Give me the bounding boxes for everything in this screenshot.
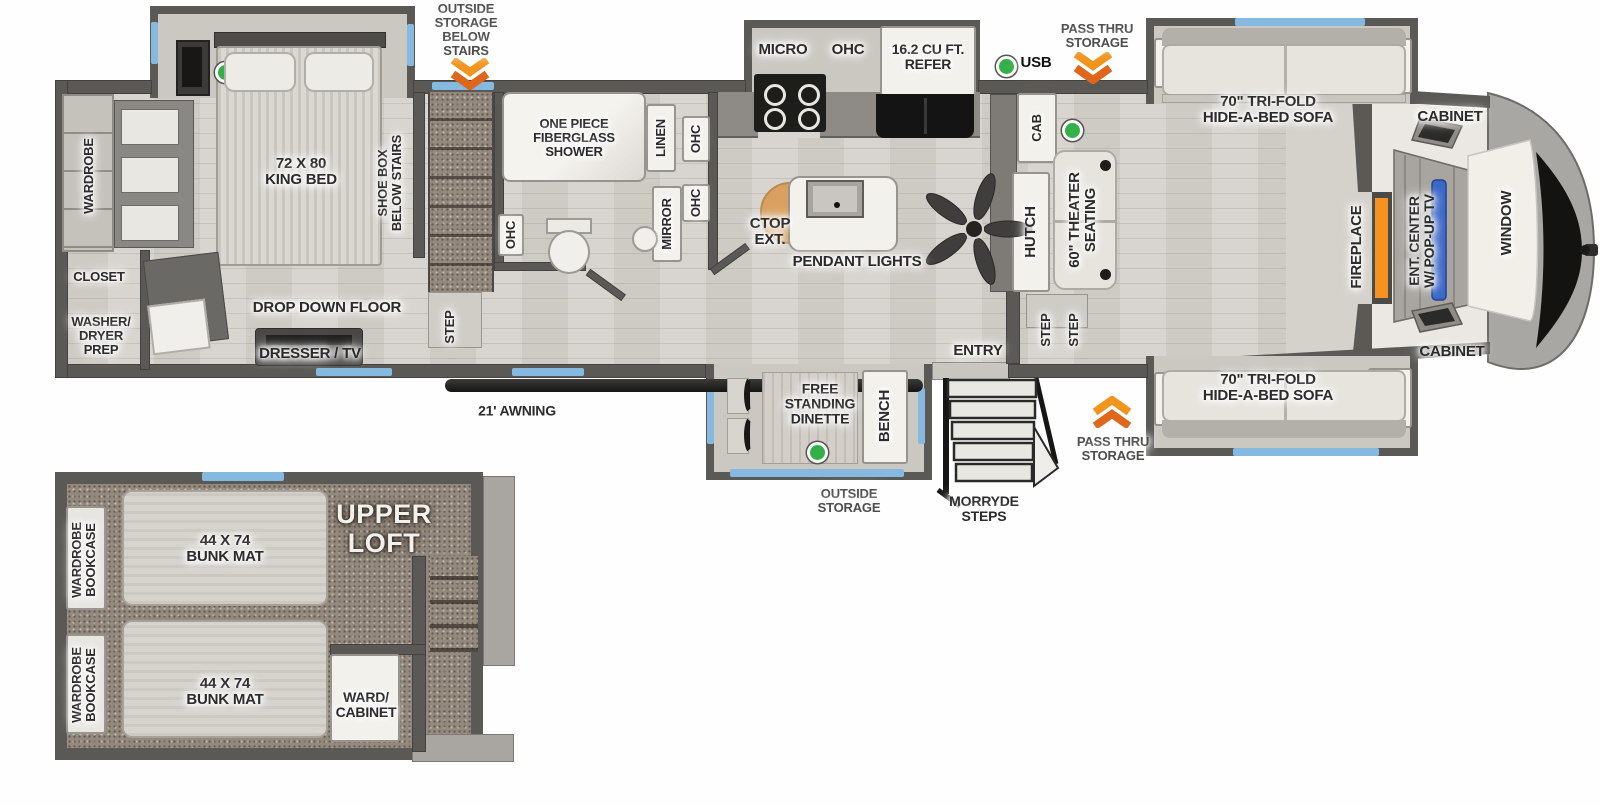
label-outside-storage: OUTSIDE STORAGE xyxy=(818,487,881,515)
label-wardrobe-bookcase-2: WARDROBE BOOKCASE xyxy=(70,647,98,723)
window-strip xyxy=(1233,448,1379,456)
storage-arrow-down xyxy=(448,58,492,90)
label-entry: ENTRY xyxy=(953,343,1002,359)
window-strip xyxy=(316,368,392,376)
window-strip xyxy=(512,368,584,376)
pillow xyxy=(224,52,296,92)
label-sofa-top: 70" TRI-FOLD HIDE-A-BED SOFA xyxy=(1203,94,1333,126)
loft-side-panel xyxy=(483,476,515,666)
label-wardrobe-bookcase-1: WARDROBE BOOKCASE xyxy=(70,522,98,598)
label-usb: USB xyxy=(1020,55,1051,71)
label-ohc-top: OHC xyxy=(689,125,703,153)
label-bench: BENCH xyxy=(877,390,893,442)
label-fireplace: FIREPLACE xyxy=(1349,205,1365,288)
label-window: WINDOW xyxy=(1499,191,1515,256)
label-closet: CLOSET xyxy=(73,270,125,284)
label-mirror: MIRROR xyxy=(660,198,674,250)
loft-stairs xyxy=(430,556,478,652)
wall xyxy=(978,80,1148,94)
label-upper-loft: UPPER LOFT xyxy=(336,500,432,558)
toilet-bowl xyxy=(548,230,590,274)
island-sink xyxy=(806,180,864,218)
label-refer: 16.2 CU FT. REFER xyxy=(892,42,965,72)
window-strip xyxy=(407,24,414,66)
label-ent-center: ENT. CENTER W/ POP-UP TV xyxy=(1407,194,1437,288)
label-pass-thru-top: PASS THRU STORAGE xyxy=(1061,22,1133,50)
label-step-left: STEP xyxy=(443,310,457,343)
usb-dot xyxy=(807,442,828,463)
cooktop xyxy=(754,74,826,132)
label-ohc-kitchen: OHC xyxy=(832,42,865,58)
pillow xyxy=(304,52,374,92)
label-awning: 21' AWNING xyxy=(478,403,556,418)
fireplace-flame xyxy=(1375,198,1388,298)
usb-dot xyxy=(1062,120,1083,141)
label-bunk-mat-2: 44 X 74 BUNK MAT xyxy=(186,676,263,708)
label-wardrobe: WARDROBE xyxy=(82,138,96,214)
label-ctop-ext: CTOP EXT. xyxy=(750,216,791,248)
label-micro: MICRO xyxy=(759,42,808,58)
window-strip xyxy=(1235,18,1365,26)
chair-back xyxy=(744,416,757,454)
sofa-back xyxy=(1162,420,1406,438)
window-strip xyxy=(918,388,925,444)
label-step-1: STEP xyxy=(1039,313,1053,346)
label-cabinet-top: CABINET xyxy=(1417,109,1482,125)
label-cab: CAB xyxy=(1030,114,1044,142)
wall xyxy=(55,80,152,94)
label-hutch: HUTCH xyxy=(1023,206,1039,258)
bath-sink xyxy=(632,226,658,252)
label-shoe-box: SHOE BOX BELOW STAIRS xyxy=(376,135,404,231)
usb-dot xyxy=(996,56,1017,77)
ceiling-fan xyxy=(915,170,1033,288)
label-sofa-bottom: 70" TRI-FOLD HIDE-A-BED SOFA xyxy=(1203,372,1333,404)
label-ward-cabinet: WARD/ CABINET xyxy=(336,690,397,720)
label-ohc-bottom: OHC xyxy=(689,189,703,217)
washer-unit xyxy=(147,299,211,356)
wall-entry xyxy=(1006,290,1020,364)
oven-handle xyxy=(758,132,820,138)
label-dinette: FREE STANDING DINETTE xyxy=(785,381,855,426)
label-outside-storage-below-stairs: OUTSIDE STORAGE BELOW STAIRS xyxy=(435,2,498,58)
window-strip xyxy=(707,388,714,444)
label-step-2: STEP xyxy=(1067,313,1081,346)
loft-landing xyxy=(412,734,514,762)
chair-back xyxy=(744,376,757,414)
label-pendant-lights: PENDANT LIGHTS xyxy=(793,254,922,270)
label-morryde-steps: MORRYDE STEPS xyxy=(949,494,1019,524)
refrigerator-front xyxy=(876,94,974,138)
tri-fold-sofa-top xyxy=(1162,44,1406,96)
label-dresser-tv: DRESSER / TV xyxy=(259,346,361,362)
window-strip xyxy=(202,472,284,481)
dresser-drawers xyxy=(114,100,194,248)
bedroom-tv xyxy=(176,40,210,96)
label-theater-seating: 60" THEATER SEATING xyxy=(1067,172,1099,267)
label-shower: ONE PIECE FIBERGLASS SHOWER xyxy=(533,117,615,159)
label-washer-dryer: WASHER/ DRYER PREP xyxy=(71,315,130,357)
window-strip xyxy=(730,469,904,477)
wall xyxy=(1008,364,1148,378)
label-linen: LINEN xyxy=(654,119,668,157)
storage-arrow-down xyxy=(1071,52,1115,84)
label-cabinet-bottom: CABINET xyxy=(1419,344,1484,360)
stairs xyxy=(428,92,494,292)
rv-floorplan: OUTSIDE STORAGE BELOW STAIRS PASS THRU S… xyxy=(0,0,1600,806)
label-pass-thru-bottom: PASS THRU STORAGE xyxy=(1077,435,1149,463)
wall-bedroom xyxy=(413,92,425,258)
label-ohc-left: OHC xyxy=(504,221,518,249)
label-bunk-mat-1: 44 X 74 BUNK MAT xyxy=(186,533,263,565)
label-drop-down-floor: DROP DOWN FLOOR xyxy=(253,300,401,316)
label-king-bed: 72 X 80 KING BED xyxy=(265,156,337,188)
storage-arrow-up xyxy=(1090,396,1134,428)
window-strip xyxy=(151,22,158,64)
